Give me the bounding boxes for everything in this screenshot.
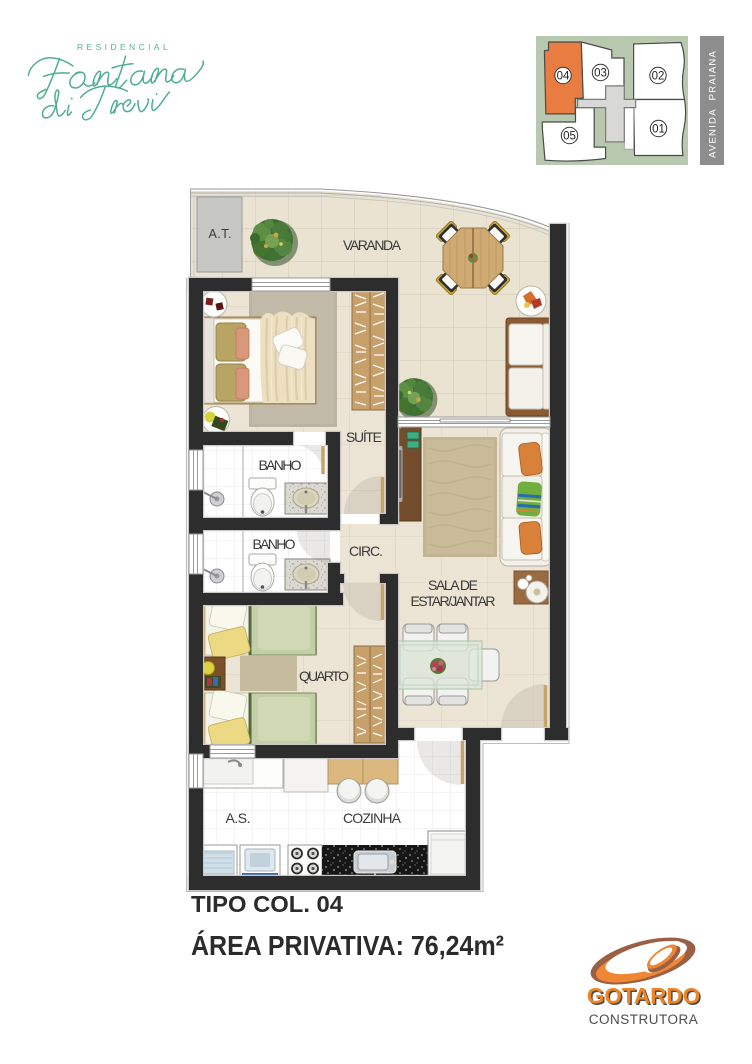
svg-text:SUÍTE: SUÍTE <box>346 429 382 445</box>
svg-text:05: 05 <box>563 131 576 143</box>
svg-text:03: 03 <box>594 68 607 80</box>
svg-text:BANHO: BANHO <box>253 536 296 552</box>
svg-text:BANHO: BANHO <box>259 457 302 473</box>
svg-text:SALA DE: SALA DE <box>428 577 478 593</box>
svg-text:TIPO COL. 04: TIPO COL. 04 <box>191 891 343 917</box>
svg-text:VARANDA: VARANDA <box>343 237 402 253</box>
svg-text:RESIDENCIAL: RESIDENCIAL <box>77 42 171 52</box>
svg-text:COZINHA: COZINHA <box>343 810 402 826</box>
svg-text:QUARTO: QUARTO <box>299 668 349 684</box>
svg-text:A.T.: A.T. <box>209 227 232 241</box>
svg-text:GOTARDO: GOTARDO <box>587 984 700 1009</box>
svg-text:01: 01 <box>652 124 665 136</box>
svg-text:CIRC.: CIRC. <box>349 543 383 559</box>
svg-text:CONSTRUTORA: CONSTRUTORA <box>589 1012 699 1027</box>
svg-text:02: 02 <box>652 71 665 83</box>
svg-text:ESTAR/JANTAR: ESTAR/JANTAR <box>411 593 496 609</box>
svg-text:AVENIDA PRAIANA: AVENIDA PRAIANA <box>708 50 719 158</box>
svg-text:ÁREA PRIVATIVA: 76,24m²: ÁREA PRIVATIVA: 76,24m² <box>191 930 504 961</box>
svg-text:04: 04 <box>557 71 570 83</box>
svg-text:A.S.: A.S. <box>226 810 251 826</box>
